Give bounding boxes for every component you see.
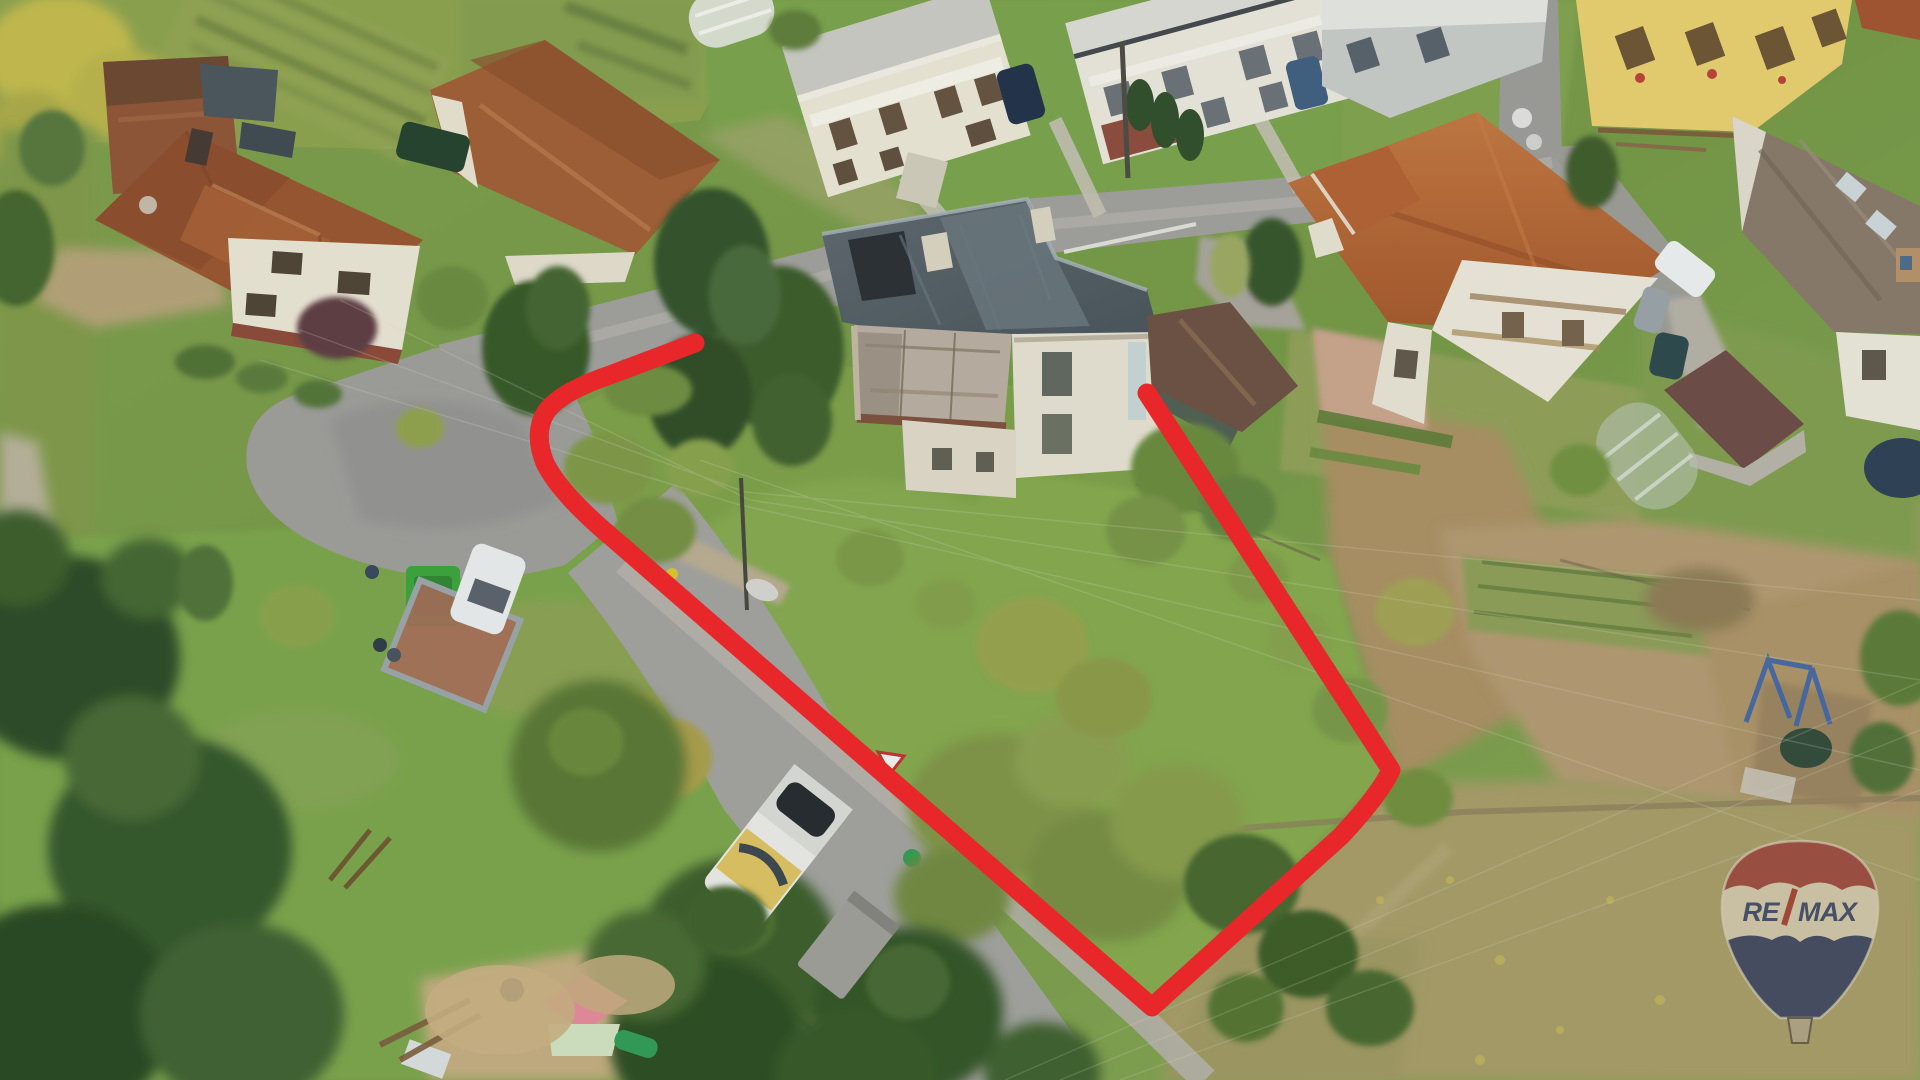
svg-text:RE: RE [1742, 897, 1780, 927]
svg-text:MAX: MAX [1798, 897, 1859, 927]
